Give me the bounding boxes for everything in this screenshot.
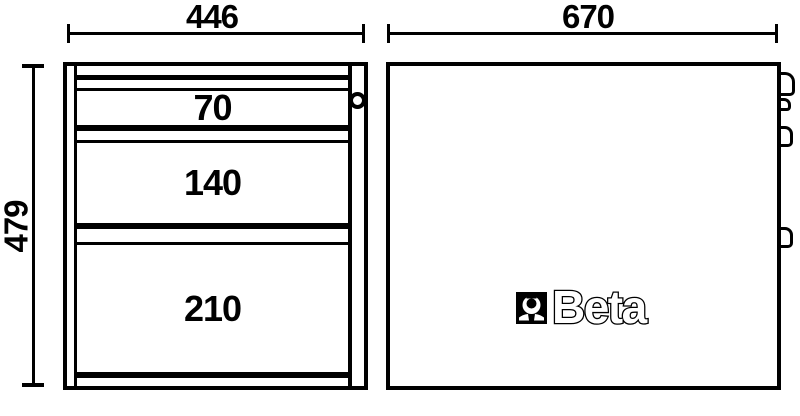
lock-icon xyxy=(349,92,366,109)
wrench-icon xyxy=(516,292,547,324)
beta-logo-graphic: Beta xyxy=(512,283,662,333)
drawer-handle-icon xyxy=(781,72,795,96)
dimension-tick-right xyxy=(775,24,778,43)
dimension-tick-left xyxy=(67,24,70,43)
drawer-shadow-line xyxy=(77,372,348,378)
cabinet-side-outline xyxy=(386,62,781,390)
top-panel-line xyxy=(77,75,348,80)
drawer-1-height-label: 70 xyxy=(77,91,348,125)
drawer-handle-icon xyxy=(781,98,791,111)
dimension-tick-bottom xyxy=(22,383,44,387)
front-width-dimension-label: 446 xyxy=(137,0,287,33)
drawer-handle-icon xyxy=(781,227,793,248)
dimension-tick-right xyxy=(362,24,365,43)
drawer-2-height-label: 140 xyxy=(77,143,348,222)
dimension-tick-top xyxy=(22,64,44,68)
side-width-dimension-label: 670 xyxy=(513,0,663,33)
frame-line-right xyxy=(348,64,352,388)
drawer-handle-icon xyxy=(781,126,793,147)
technical-drawing-canvas: 446 670 479 70 140 210 xyxy=(0,0,800,416)
beta-logo: Beta xyxy=(512,283,662,333)
front-height-dimension-label: 479 xyxy=(1,182,32,272)
beta-logo-text: Beta xyxy=(552,283,648,333)
dimension-tick-left xyxy=(387,24,390,43)
drawer-3-height-label: 210 xyxy=(77,245,348,372)
drawer-shadow-line xyxy=(77,223,348,229)
